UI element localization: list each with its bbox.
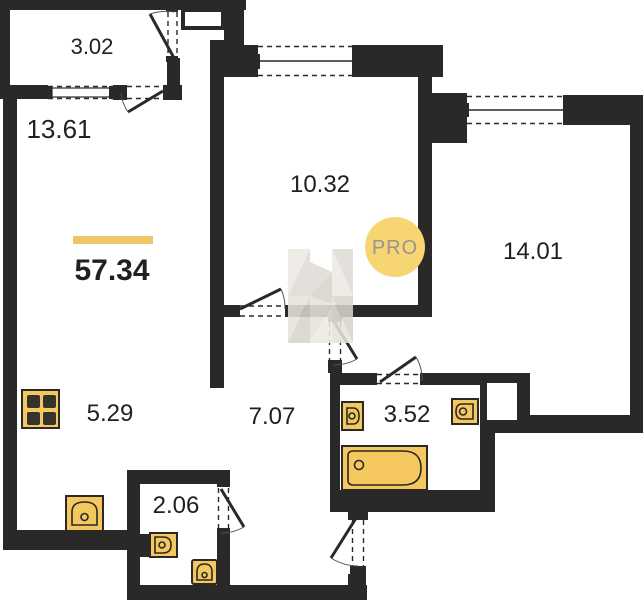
duct-shaft-top [183,10,223,28]
builder-logo-watermark [288,249,353,343]
door-entrance [331,515,364,566]
area-label-bedroom-2: 14.01 [503,238,563,265]
door-bedroom [240,289,285,316]
wc-sink [138,533,177,557]
window-balcony [48,85,113,100]
door-wc [219,488,245,533]
toilet [192,560,217,584]
area-label-hallway: 7.07 [249,403,296,430]
area-label-bedroom: 10.32 [290,171,350,198]
kitchen-sink [66,496,103,531]
area-label-wc: 2.06 [153,492,200,519]
bathroom-sink-left [342,402,363,430]
pro-badge: PRO [365,217,425,277]
pro-badge-label: PRO [372,237,418,259]
duct-shaft-bathroom [487,383,517,420]
total-area-accent-bar [73,236,153,244]
area-label-balcony: 3.02 [71,34,114,59]
floor-plan: PRO 3.02 13.61 10.32 14.01 5.29 7.07 3.5… [0,0,643,600]
area-label-kitchen: 5.29 [87,400,134,427]
total-area: 57.34 [73,236,153,287]
door-balcony-side [150,11,178,58]
door-balcony-living [121,85,163,112]
bathroom-sink-right [452,399,478,424]
area-label-bathroom: 3.52 [384,401,431,428]
bathtub [342,446,427,490]
floor-plan-svg: PRO 3.02 13.61 10.32 14.01 5.29 7.07 3.5… [0,0,643,600]
window-bedroom [252,45,360,77]
door-bathroom [377,357,422,384]
window-bedroom-2 [461,95,571,125]
stove-icon [22,390,59,428]
area-label-living: 13.61 [26,114,91,144]
total-area-value: 57.34 [74,254,149,287]
